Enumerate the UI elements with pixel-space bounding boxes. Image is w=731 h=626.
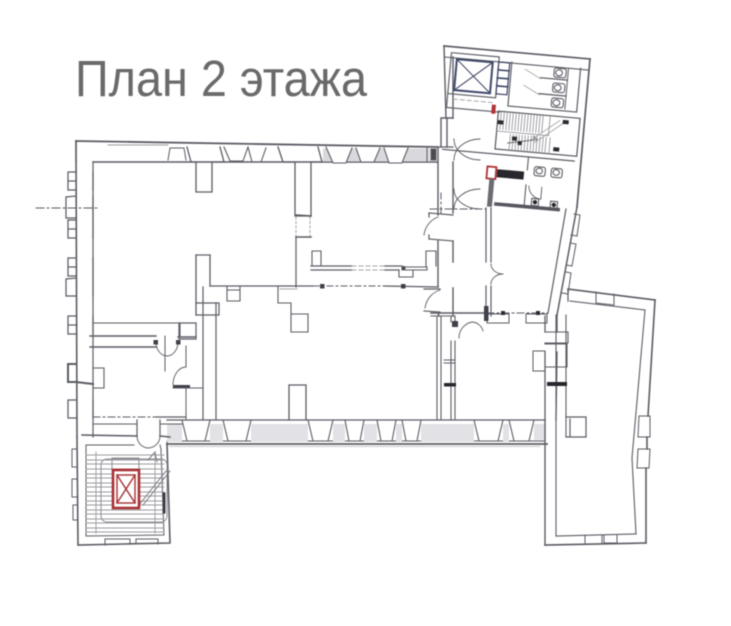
svg-text:План 2 этажа: План 2 этажа: [75, 50, 368, 107]
